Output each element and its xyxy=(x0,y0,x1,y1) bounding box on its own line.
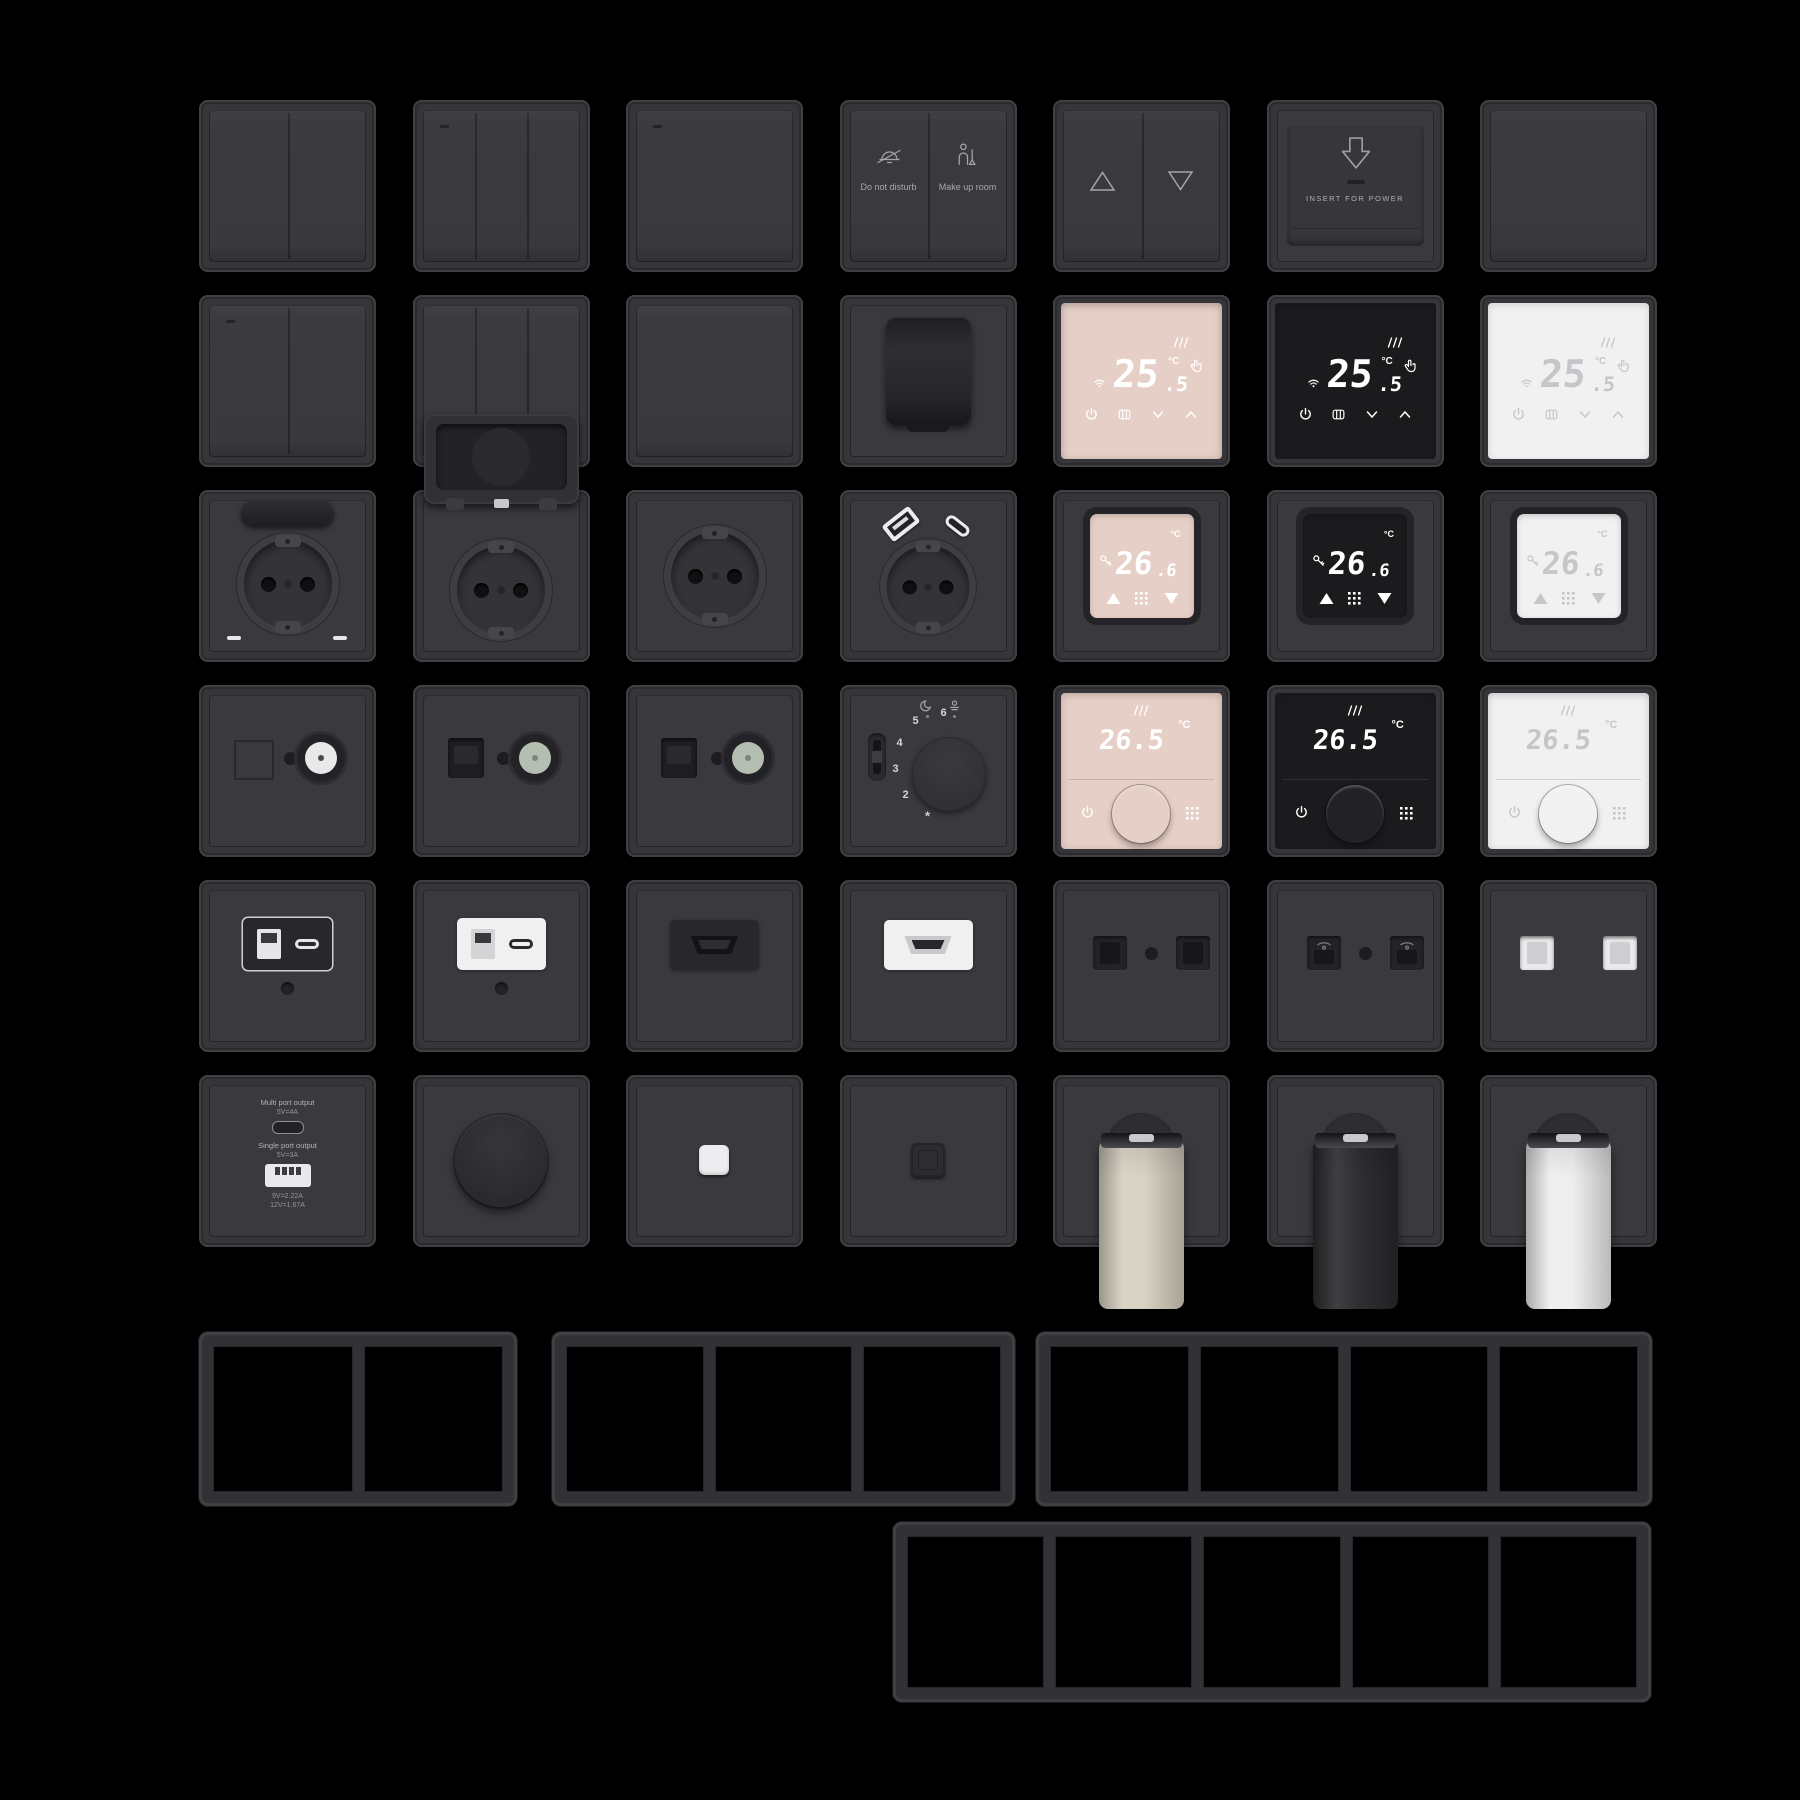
outlet-plate xyxy=(1063,890,1220,1042)
thermostat-touch-face: 25°C.5 xyxy=(1275,303,1436,459)
indicator-led xyxy=(226,320,235,323)
pin-hole xyxy=(261,577,276,592)
center-dot xyxy=(1359,947,1372,960)
hand-touch-icon xyxy=(1190,359,1202,373)
card-label: INSERT FOR POWER xyxy=(1277,194,1434,203)
cover-latch xyxy=(907,421,949,432)
coax-connector xyxy=(724,734,772,782)
data-port xyxy=(661,738,697,778)
do-not-disturb-label: Do not disturb xyxy=(856,182,922,193)
display-divider xyxy=(1283,779,1428,780)
curtain-down-icon xyxy=(1167,170,1194,192)
outlet-plate xyxy=(209,890,366,1042)
rocker-plate xyxy=(636,110,793,262)
grounding-clip xyxy=(488,541,514,553)
temperature-main: 26 xyxy=(1540,549,1580,580)
chevron-up-icon xyxy=(1184,410,1198,419)
frame-slot xyxy=(863,1346,1001,1492)
do-not-disturb-icon xyxy=(873,144,905,166)
make-up-room-icon xyxy=(953,142,980,167)
charger-plate: Multi port output5V=4ASingle port output… xyxy=(209,1085,366,1237)
thermostat-dial-face: 26.5°C xyxy=(1488,693,1649,849)
center-dot xyxy=(284,752,297,765)
usb-c-port xyxy=(509,939,533,949)
pin-hole xyxy=(727,569,742,584)
frame-slot xyxy=(213,1346,353,1492)
center-dot xyxy=(495,982,508,995)
schuko-socket xyxy=(457,546,545,634)
chevron-down-icon xyxy=(1578,410,1592,419)
thermostat-touch-white: 25°C.5 xyxy=(1480,295,1657,467)
usb-c-port xyxy=(295,939,319,949)
temperature-unit: °C xyxy=(1168,356,1179,367)
pin-hole xyxy=(513,583,528,598)
center-dot xyxy=(497,586,505,594)
frame-2gang xyxy=(199,1332,517,1506)
heating-icon xyxy=(1558,705,1577,716)
dial-number: 6 xyxy=(940,707,946,719)
temperature-main: 26 xyxy=(1327,549,1367,580)
frame-slot xyxy=(1200,1346,1339,1492)
thermostat-knob-black: 26.5°C xyxy=(1267,685,1444,857)
frame-slot xyxy=(1055,1536,1192,1688)
thermostat-touch-face: 25°C.5 xyxy=(1061,303,1222,459)
temperature-main: 25 xyxy=(1538,355,1587,393)
insert-arrow-icon xyxy=(1335,136,1377,171)
single-port-label: Single port output xyxy=(258,1141,317,1150)
temperature-dial-knob xyxy=(912,737,986,811)
hdmi-outlet-dark xyxy=(626,880,803,1052)
indicator-dash xyxy=(333,636,347,640)
frost-symbol: * xyxy=(925,809,930,824)
usb-outlet-dark xyxy=(199,880,376,1052)
pin-hole xyxy=(903,580,917,594)
center-dot xyxy=(281,982,294,995)
triangle-down-icon xyxy=(1377,593,1392,604)
grounding-clip xyxy=(916,541,940,552)
data-port xyxy=(1520,936,1554,970)
temperature-unit: °C xyxy=(1178,719,1190,731)
power-icon xyxy=(1511,407,1526,422)
frame-slot xyxy=(907,1536,1044,1688)
blank-cover xyxy=(1490,110,1647,262)
frame-slot xyxy=(566,1346,704,1492)
key-card-holder: INSERT FOR POWER xyxy=(1267,100,1444,272)
hdmi-port xyxy=(691,936,738,954)
frame-openings xyxy=(213,1346,503,1492)
chevron-up-icon xyxy=(1611,410,1625,419)
chevron-down-icon xyxy=(1365,410,1379,419)
hdmi-port xyxy=(905,936,952,954)
center-dot xyxy=(711,572,719,580)
temperature-unit: °C xyxy=(1382,356,1393,367)
heating-icon xyxy=(1345,705,1364,716)
usb-a-port xyxy=(471,929,495,959)
tv-port xyxy=(234,740,274,780)
dial-number: 3 xyxy=(892,763,898,775)
temperature-frac: .5 xyxy=(1163,374,1189,394)
wifi-icon xyxy=(1093,377,1106,388)
rotary-knob xyxy=(1112,785,1170,843)
grounding-clip xyxy=(488,627,514,639)
thermostat-knob-white: 26.5°C xyxy=(1480,685,1657,857)
key-icon xyxy=(1312,554,1325,567)
usb-outlet-white xyxy=(413,880,590,1052)
phone-port xyxy=(1307,936,1341,970)
display-divider xyxy=(1069,779,1214,780)
thermostat-dial-face: 26.5°C xyxy=(1061,693,1222,849)
frame-slot xyxy=(1203,1536,1340,1688)
tv-socket xyxy=(199,685,376,857)
hdmi-outlet-white xyxy=(840,880,1017,1052)
pushbutton-white xyxy=(626,1075,803,1247)
push-button xyxy=(911,1143,945,1177)
power-icon xyxy=(1084,407,1099,422)
coax-connector xyxy=(297,734,345,782)
rotary-knob xyxy=(1326,785,1384,843)
lid-recess-circle xyxy=(472,428,530,486)
make-up-room-label: Make up room xyxy=(935,182,1001,193)
data-outlet-white xyxy=(1480,880,1657,1052)
indicator-dash xyxy=(227,636,241,640)
socket-lid-closed xyxy=(199,490,376,662)
valve-clip-highlight xyxy=(1343,1134,1368,1142)
rocker-plate xyxy=(209,110,366,262)
mode-dot xyxy=(953,715,956,718)
dial-number: 4 xyxy=(896,737,902,749)
schuko-socket xyxy=(887,546,970,629)
frame-openings xyxy=(907,1536,1637,1688)
center-dot xyxy=(1145,947,1158,960)
mode-slider xyxy=(868,733,886,781)
pushbutton-dark xyxy=(840,1075,1017,1247)
socket-lid-open xyxy=(413,490,590,662)
wifi-icon xyxy=(1520,377,1533,388)
key-icon xyxy=(1099,554,1112,567)
heating-icon xyxy=(1598,337,1617,348)
temperature-unit: °C xyxy=(1597,529,1607,539)
coax-connector xyxy=(511,734,559,782)
temperature-unit: °C xyxy=(1605,719,1617,731)
grounding-clip xyxy=(916,622,940,633)
grounding-clip xyxy=(275,621,301,633)
pin-hole xyxy=(939,580,953,594)
grounding-clip xyxy=(702,613,728,625)
outlet-plate xyxy=(423,890,580,1042)
data-port xyxy=(1603,936,1637,970)
pin-hole xyxy=(474,583,489,598)
heating-icon xyxy=(1385,337,1404,348)
thermostat-display: °C26.6 xyxy=(1517,514,1621,618)
valve-clip-highlight xyxy=(1556,1134,1581,1142)
socket-cover xyxy=(886,317,971,425)
valve-body xyxy=(1313,1141,1398,1309)
thermostat-touch-face: 25°C.5 xyxy=(1488,303,1649,459)
phone-port xyxy=(1390,936,1424,970)
data-port xyxy=(448,738,484,778)
tv-data-socket-2 xyxy=(626,685,803,857)
dial-number: 5 xyxy=(912,715,918,727)
data-port xyxy=(1093,936,1127,970)
thermostat-mechanical: 65432* xyxy=(840,685,1017,857)
radiator-mode-icon xyxy=(1331,407,1346,422)
night-mode-icon xyxy=(920,699,933,712)
grid-dots-icon xyxy=(1613,807,1626,820)
radiator-mode-icon xyxy=(1544,407,1559,422)
center-dot xyxy=(711,752,724,765)
day-mode-icon xyxy=(948,699,961,712)
card-slot xyxy=(1347,180,1365,184)
output-spec-9v: 9V=2.22A xyxy=(272,1193,303,1200)
temperature-main: 25 xyxy=(1111,355,1160,393)
radiator-valve-black xyxy=(1267,1075,1444,1247)
usb-insert xyxy=(243,918,332,970)
product-grid: Do not disturbMake up roomINSERT FOR POW… xyxy=(0,0,1800,1800)
hand-touch-icon xyxy=(1404,359,1416,373)
valve-body xyxy=(1099,1141,1184,1309)
frame-slot xyxy=(715,1346,853,1492)
temperature-main: 26 xyxy=(1113,549,1153,580)
curtain-plate xyxy=(1063,110,1220,262)
grid-dots-icon xyxy=(1348,592,1361,605)
temperature-frac: .5 xyxy=(1590,374,1616,394)
switch-2gang xyxy=(199,100,376,272)
lid-clip xyxy=(494,499,509,508)
temperature-value: 26.5 xyxy=(1098,727,1165,754)
chevron-up-icon xyxy=(1398,410,1412,419)
valve-body xyxy=(1526,1141,1611,1309)
frame-slot xyxy=(1500,1536,1637,1688)
outlet-plate xyxy=(636,890,793,1042)
heating-icon xyxy=(1171,337,1190,348)
grid-dots-icon xyxy=(1186,807,1199,820)
display-divider xyxy=(1496,779,1641,780)
socket-plate xyxy=(209,695,366,847)
frame-slot xyxy=(1350,1346,1489,1492)
schuko-socket xyxy=(244,540,332,628)
single-port-spec: 5V=3A xyxy=(277,1152,298,1159)
outlet-plate xyxy=(850,890,1007,1042)
output-spec-12v: 12V=1.67A xyxy=(270,1202,305,1209)
grounding-clip xyxy=(275,535,301,547)
switch-1gang-indicator xyxy=(626,100,803,272)
key-icon xyxy=(1526,554,1539,567)
thermostat-touch-black: 25°C.5 xyxy=(1267,295,1444,467)
usb-a-port xyxy=(257,929,281,959)
closed-lid-handle xyxy=(241,500,334,527)
hotel-plate: Do not disturbMake up room xyxy=(850,110,1007,262)
rotary-knob xyxy=(1539,785,1597,843)
wifi-icon xyxy=(1307,377,1320,388)
switch-3gang xyxy=(413,100,590,272)
thermostat-dial-face: 26.5°C xyxy=(1275,693,1436,849)
temperature-unit: °C xyxy=(1595,356,1606,367)
rocker-plate xyxy=(209,305,366,457)
frame-3gang xyxy=(552,1332,1015,1506)
covered-socket xyxy=(840,295,1017,467)
multi-port-spec: 5V=4A xyxy=(277,1109,298,1116)
switch-2gang-indicator xyxy=(199,295,376,467)
thermostat-display-rose: °C26.6 xyxy=(1053,490,1230,662)
frame-5gang xyxy=(893,1522,1651,1702)
thermostat-display: °C26.6 xyxy=(1090,514,1194,618)
frame-slot xyxy=(1352,1536,1489,1688)
frame-slot xyxy=(1050,1346,1189,1492)
thermostat-display: °C26.6 xyxy=(1303,514,1407,618)
power-icon xyxy=(1507,805,1522,820)
triangle-down-icon xyxy=(1164,593,1179,604)
multi-port-label: Multi port output xyxy=(261,1098,315,1107)
pin-hole xyxy=(688,569,703,584)
blank-plate xyxy=(1480,100,1657,272)
temperature-unit: °C xyxy=(1392,719,1404,731)
mode-dot xyxy=(926,715,929,718)
curtain-switch xyxy=(1053,100,1230,272)
temperature-unit: °C xyxy=(1170,529,1180,539)
triangle-up-icon xyxy=(1319,593,1334,604)
frame-slot xyxy=(364,1346,504,1492)
temperature-unit: °C xyxy=(1384,529,1394,539)
rocker-plate xyxy=(636,305,793,457)
center-dot xyxy=(284,580,292,588)
usb-charger-plate: Multi port output5V=4ASingle port output… xyxy=(199,1075,376,1247)
grid-dots-icon xyxy=(1400,807,1413,820)
hand-touch-icon xyxy=(1617,359,1629,373)
outlet-plate xyxy=(1277,890,1434,1042)
radiator-valve-white xyxy=(1480,1075,1657,1247)
temperature-frac: .6 xyxy=(1582,563,1604,580)
tv-data-socket-1 xyxy=(413,685,590,857)
thermostat-touch-rose: 25°C.5 xyxy=(1053,295,1230,467)
grounding-clip xyxy=(702,527,728,539)
curtain-up-icon xyxy=(1089,170,1116,192)
temperature-frac: .6 xyxy=(1155,563,1177,580)
lid-hinge xyxy=(539,498,557,510)
triangle-down-icon xyxy=(1591,593,1606,604)
frame-slot xyxy=(1499,1346,1638,1492)
radiator-mode-icon xyxy=(1117,407,1132,422)
push-button xyxy=(699,1145,729,1175)
pin-hole xyxy=(300,577,315,592)
indicator-led xyxy=(653,125,662,128)
chevron-down-icon xyxy=(1151,410,1165,419)
heating-icon xyxy=(1131,705,1150,716)
triangle-up-icon xyxy=(1106,593,1121,604)
socket-usb xyxy=(840,490,1017,662)
power-icon xyxy=(1080,805,1095,820)
socket-schuko xyxy=(626,490,803,662)
hotel-service-switch: Do not disturbMake up room xyxy=(840,100,1017,272)
frame-openings xyxy=(566,1346,1001,1492)
rocker-plate xyxy=(423,110,580,262)
power-icon xyxy=(1294,805,1309,820)
usb-a-port xyxy=(265,1164,311,1187)
schuko-socket xyxy=(671,532,759,620)
thermostat-display-black: °C26.6 xyxy=(1267,490,1444,662)
frame-openings xyxy=(1050,1346,1638,1492)
radiator-valve-cream xyxy=(1053,1075,1230,1247)
temperature-frac: .6 xyxy=(1368,563,1390,580)
usb-c-port xyxy=(272,1121,304,1134)
socket-plate xyxy=(636,695,793,847)
hdmi-insert xyxy=(670,920,759,970)
pocket-seam xyxy=(1291,228,1420,229)
center-dot xyxy=(497,752,510,765)
temperature-value: 26.5 xyxy=(1525,727,1592,754)
grid-dots-icon xyxy=(1135,592,1148,605)
usb-insert xyxy=(457,918,546,970)
rotary-dimmer xyxy=(413,1075,590,1247)
card-holder-plate: INSERT FOR POWER xyxy=(1277,110,1434,262)
valve-clip-highlight xyxy=(1129,1134,1154,1142)
thermostat-display-white: °C26.6 xyxy=(1480,490,1657,662)
triangle-up-icon xyxy=(1533,593,1548,604)
temperature-frac: .5 xyxy=(1377,374,1403,394)
phone-outlet-dark xyxy=(1267,880,1444,1052)
open-lid xyxy=(424,414,579,504)
indicator-led xyxy=(440,125,449,128)
switch-1gang xyxy=(626,295,803,467)
temperature-main: 25 xyxy=(1325,355,1374,393)
center-dot xyxy=(924,583,932,591)
power-icon xyxy=(1298,407,1313,422)
dimmer-knob xyxy=(455,1115,547,1207)
outlet-plate xyxy=(1490,890,1647,1042)
hdmi-insert xyxy=(884,920,973,970)
lid-hinge xyxy=(446,498,464,510)
thermostat-knob-rose: 26.5°C xyxy=(1053,685,1230,857)
data-port xyxy=(1176,936,1210,970)
frame-4gang xyxy=(1036,1332,1652,1506)
dial-number: 2 xyxy=(902,789,908,801)
data-outlet-dark xyxy=(1053,880,1230,1052)
temperature-value: 26.5 xyxy=(1311,727,1378,754)
grid-dots-icon xyxy=(1562,592,1575,605)
socket-plate xyxy=(423,695,580,847)
